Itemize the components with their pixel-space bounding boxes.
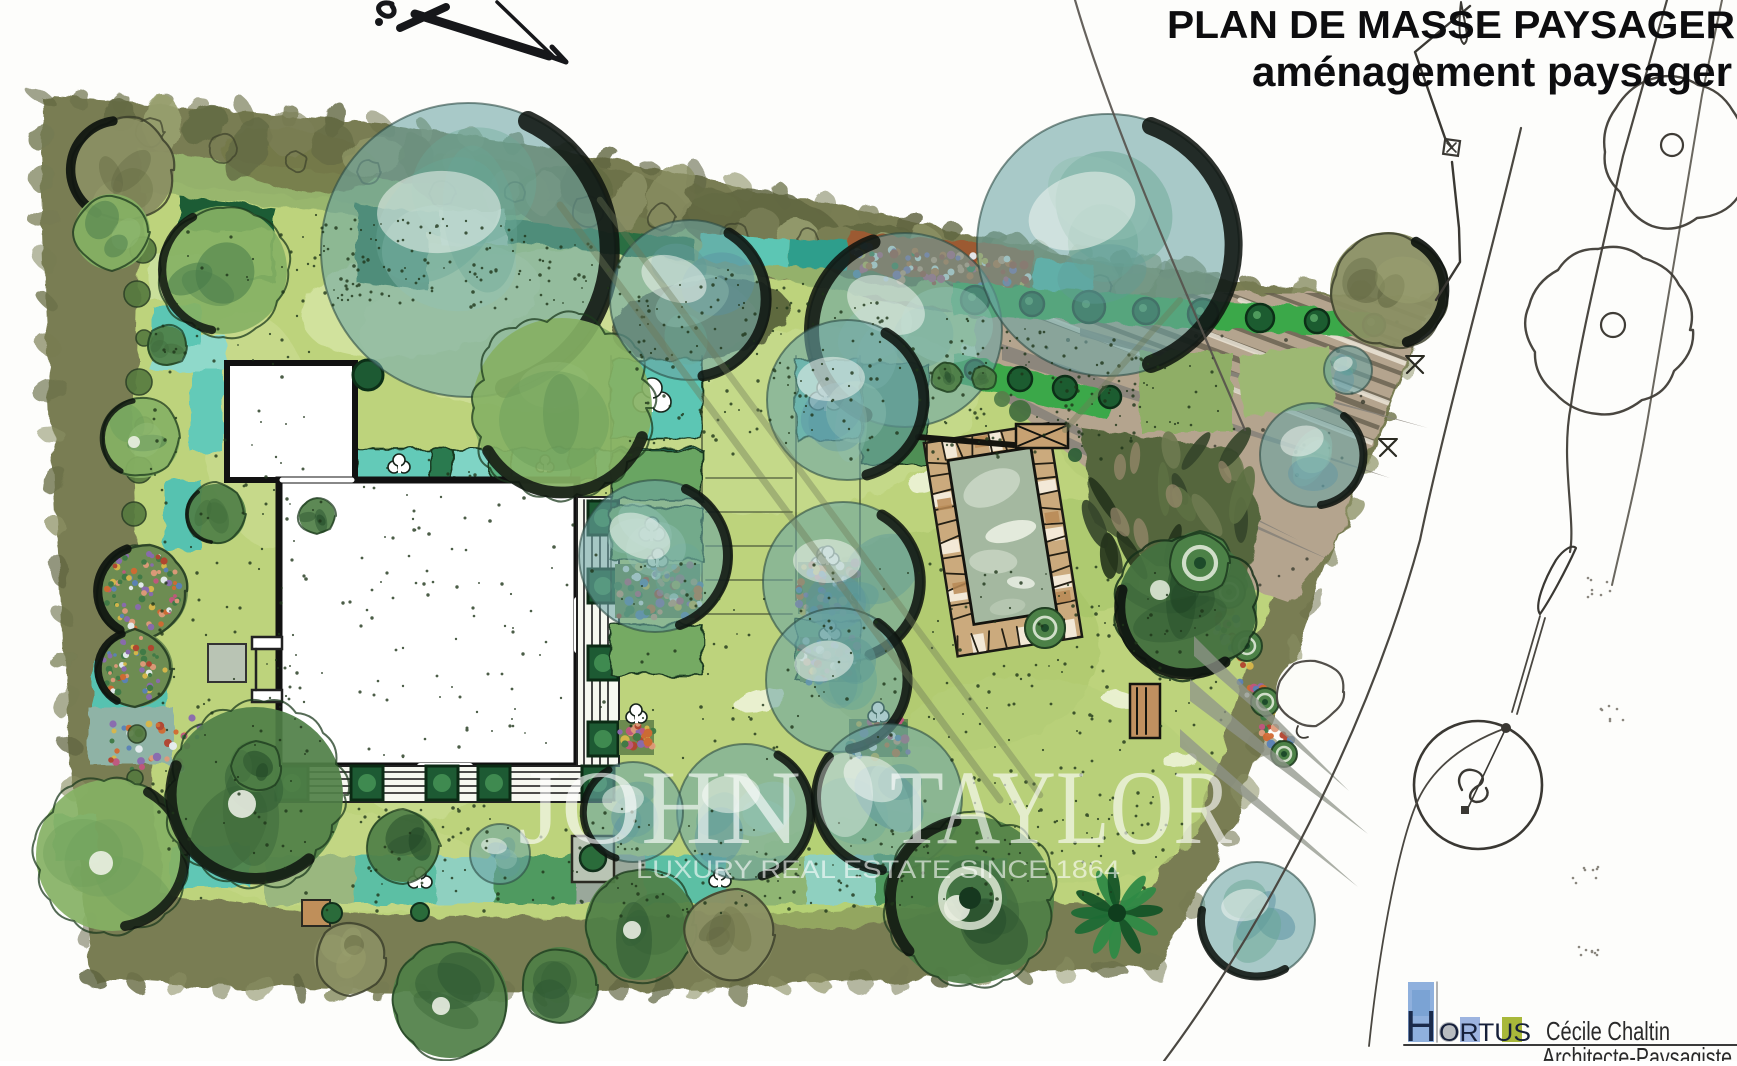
- svg-text:H: H: [1405, 1002, 1437, 1051]
- svg-text:TAYLOR: TAYLOR: [890, 749, 1232, 866]
- svg-text:LUXURY REAL ESTATE SINCE 1864: LUXURY REAL ESTATE SINCE 1864: [636, 856, 1120, 884]
- svg-text:aménagement paysager: aménagement paysager: [1252, 48, 1732, 95]
- svg-text:JOHN: JOHN: [518, 749, 801, 866]
- svg-text:Architecte-Paysagiste: Architecte-Paysagiste: [1542, 1042, 1732, 1061]
- svg-text:ORTUS: ORTUS: [1439, 1019, 1531, 1047]
- svg-text:PLAN DE MASSE PAYSAGER: PLAN DE MASSE PAYSAGER: [1167, 4, 1735, 47]
